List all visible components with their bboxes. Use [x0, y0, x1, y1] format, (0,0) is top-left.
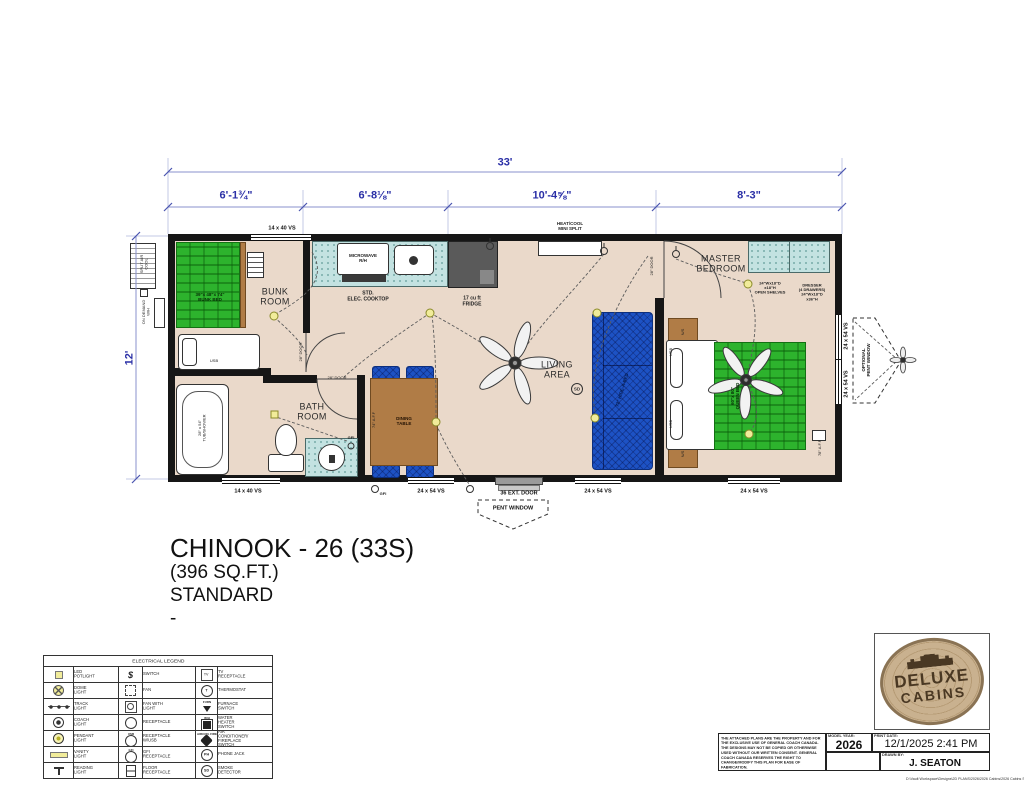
water-heater-switch-icon: W/H: [196, 715, 218, 730]
gfi-label: GFI: [348, 436, 355, 441]
door-28-label: 28" DOOR: [650, 257, 655, 276]
window-label-b1: 14 x 40 VS: [234, 488, 261, 494]
room-label-master: MASTER BEDROOM: [696, 254, 745, 275]
cooktop: [342, 275, 386, 282]
track-light-icon: [44, 699, 74, 714]
open-shelves-label: 24"Wx18"D x18"H OPEN SHELVES: [755, 281, 786, 295]
file-path: D:\Vault Workspace\Designs\2D PLANS\2026…: [826, 771, 990, 789]
aff78-label: 78" A.F.F: [818, 440, 823, 456]
wall-master: [655, 298, 664, 475]
toilet-tank: [268, 454, 304, 472]
exterior-door: [495, 477, 543, 485]
smoke-detector-icon: SD: [196, 763, 218, 778]
aircon-fireplace-switch-icon: AIRCON. FIRE: [196, 731, 218, 746]
dim-segment-2: 6'-8⅛": [359, 190, 392, 203]
legend-row: LED POTLIGHT $ SWITCH TV TV RECEPTACLE: [44, 667, 272, 683]
dim-height: 12': [124, 351, 137, 366]
drawn-by-label: DRAWN BY:: [882, 753, 904, 757]
wall-bath-right: [357, 375, 365, 475]
on-demand-wh-label: ON DEMAND W/H: [141, 300, 150, 324]
mini-split-unit: [538, 241, 602, 256]
switch-icon: $: [119, 667, 143, 682]
fridge: [448, 241, 498, 288]
fan-with-light-icon: [119, 699, 143, 714]
window-bottom-24x54-a: [408, 477, 454, 484]
disclaimer-box: THE ATTACHED PLANS ARE THE PROPERTY AND …: [718, 733, 826, 771]
usb-label: USB: [210, 359, 218, 364]
legend-title: ELECTRICAL LEGEND: [44, 656, 272, 667]
floor-plan-sheet: 33' 6'-1¾" 6'-8⅛" 10'-4⅝" 8'-3" 12': [0, 0, 1024, 791]
brand-box: [826, 752, 880, 771]
gfi-label: GFI: [380, 492, 387, 497]
usb-label: USB: [669, 420, 674, 428]
dim-segment-1: 6'-1¾": [220, 190, 253, 203]
room-label-living: LIVING AREA: [541, 360, 573, 381]
door-28-label: 28" DOOR: [299, 343, 304, 362]
legend-row: PENDANT LIGHT USB RECEPTACLE W/USB AIRCO…: [44, 731, 272, 747]
bunk-pillow: [182, 338, 197, 366]
cooktop-label: STD. ELEC. COOKTOP: [347, 290, 388, 302]
nightstand-label: N/S: [681, 451, 686, 458]
bath-faucet-icon: [329, 455, 335, 463]
window-bottom-24x54-c: [728, 477, 780, 484]
window-right-24x54-b: [835, 360, 842, 404]
window-right-24x54-a: [835, 315, 842, 359]
ext-door-label: 36 EXT. DOOR: [500, 490, 537, 496]
model-year-value: 2026: [827, 738, 871, 752]
plan-dash: -: [170, 608, 176, 630]
receptacle-usb-icon: USB: [119, 731, 143, 746]
pent-window-label: PENT WINDOW: [493, 505, 533, 511]
plan-trim: STANDARD: [170, 585, 273, 607]
fridge-label: 17 cu ft FRIDGE: [463, 295, 482, 307]
fan-icon: [119, 683, 143, 698]
receptacle-icon: [119, 715, 143, 730]
window-label-r1: 24 x 54 VS: [843, 322, 849, 349]
bunk-bed: [176, 242, 240, 328]
window-label-b4: 24 x 54 VS: [740, 488, 767, 494]
nightstand-label: N/S: [681, 329, 686, 336]
thermostat-icon: T: [196, 683, 218, 698]
wood-slice-icon: DELUXE CABINS: [876, 633, 989, 730]
window-label-r2: 24 x 54 VS: [843, 370, 849, 397]
phone-jack-icon: PH: [196, 747, 218, 762]
legend-row: DOME LIGHT FAN T THERMOSTAT: [44, 683, 272, 699]
room-label-bunk: BUNK ROOM: [260, 287, 290, 308]
dome-light-icon: [44, 683, 74, 698]
on-demand-wh-unit: [154, 298, 165, 328]
usb-label: USB: [669, 348, 674, 356]
legend-row: VANITY LIGHT GFI GFI RECEPTACLE PH PHONE…: [44, 747, 272, 763]
dining-chair: [372, 464, 400, 478]
model-year-box: MODEL YEAR: 2026: [826, 733, 872, 752]
window-top-14x40: [251, 234, 311, 241]
drawn-by-value: J. SEATON: [881, 758, 989, 769]
window-label-b3: 24 x 54 VS: [584, 488, 611, 494]
smoke-detector-label: SD: [574, 386, 580, 391]
window-label-b2: 24 x 54 VS: [417, 488, 444, 494]
tv-receptacle-icon: TV: [196, 667, 218, 682]
plan-title: CHINOOK - 26 (33S): [170, 533, 414, 564]
wall-bunk-right: [303, 241, 310, 333]
dining-table-label: DINING TABLE: [396, 416, 412, 426]
drawn-by-box: DRAWN BY: J. SEATON: [880, 752, 990, 771]
electrical-legend: ELECTRICAL LEGEND LED POTLIGHT $ SWITCH …: [43, 655, 273, 779]
toilet-bowl: [275, 424, 297, 456]
bunk-bed-label: 39"x 48"x 74" BUNK BED: [196, 292, 225, 302]
mini-split-label: HEAT/COOL MINI SPLIT: [557, 221, 583, 231]
legend-row: TRACK LIGHT FAN WITH LIGHT FURN FURNACE …: [44, 699, 272, 715]
kitchen-sink: [394, 245, 434, 275]
bunk-bed-rail: [240, 242, 246, 328]
furnace-switch-icon: FURN: [196, 699, 218, 714]
split-air-label: SPLIT AIR COOL: [139, 255, 148, 274]
optional-pent-window-label: OPTIONAL PENT WINDOW: [861, 344, 871, 377]
window-label-top: 14 x 40 VS: [268, 225, 295, 231]
queen-bed-label: 60"x 80" QUEEN BED: [730, 383, 740, 410]
microwave-label: MICROWAVE R/H: [349, 253, 377, 263]
print-date-box: PRINT DATE: 12/1/2025 2:41 PM: [872, 733, 990, 752]
window-bottom-24x54-b: [575, 477, 621, 484]
gable-fan-icon: [890, 347, 916, 373]
door-28-label: 28" DOOR: [328, 376, 347, 381]
pendant-light-icon: [44, 731, 74, 746]
gfi-receptacle-icon: GFI: [119, 747, 143, 762]
aff74-label: 74" A.F.F: [372, 412, 377, 428]
floor-receptacle-icon: [119, 763, 143, 778]
dim-overall-width: 33': [498, 157, 513, 170]
coach-light-icon: [44, 715, 74, 730]
room-label-bath: BATH ROOM: [297, 402, 327, 423]
split-air-foot: [140, 289, 148, 297]
vanity-light-icon: [44, 747, 74, 762]
dim-segment-3: 10'-4⅝": [532, 190, 571, 203]
tub-label: 28" x 54" TUB/SHOWER: [197, 414, 206, 441]
queen-bed: [714, 342, 806, 450]
bunk-ladder-icon: [247, 252, 264, 278]
dining-chair: [406, 464, 434, 478]
dresser-label: DRESSER (4 DRAWERS) 24"Wx18"D x36"H: [799, 283, 825, 301]
print-date-value: 12/1/2025 2:41 PM: [873, 738, 989, 750]
led-potlight-icon: [44, 667, 74, 682]
legend-row: COACH LIGHT RECEPTACLE W/H WATER HEATER …: [44, 715, 272, 731]
legend-row: READING LIGHT FLOOR RECEPTACLE SD SMOKE …: [44, 763, 272, 778]
wall-bath-top: [263, 375, 317, 383]
reading-light-icon: [44, 763, 74, 778]
deluxe-cabins-logo: DELUXE CABINS: [874, 633, 990, 730]
dresser-open-shelves: [748, 241, 830, 273]
dim-segment-4: 8'-3": [737, 190, 761, 203]
plan-sqft: (396 SQ.FT.): [170, 562, 279, 584]
window-bottom-14x40: [222, 477, 280, 484]
